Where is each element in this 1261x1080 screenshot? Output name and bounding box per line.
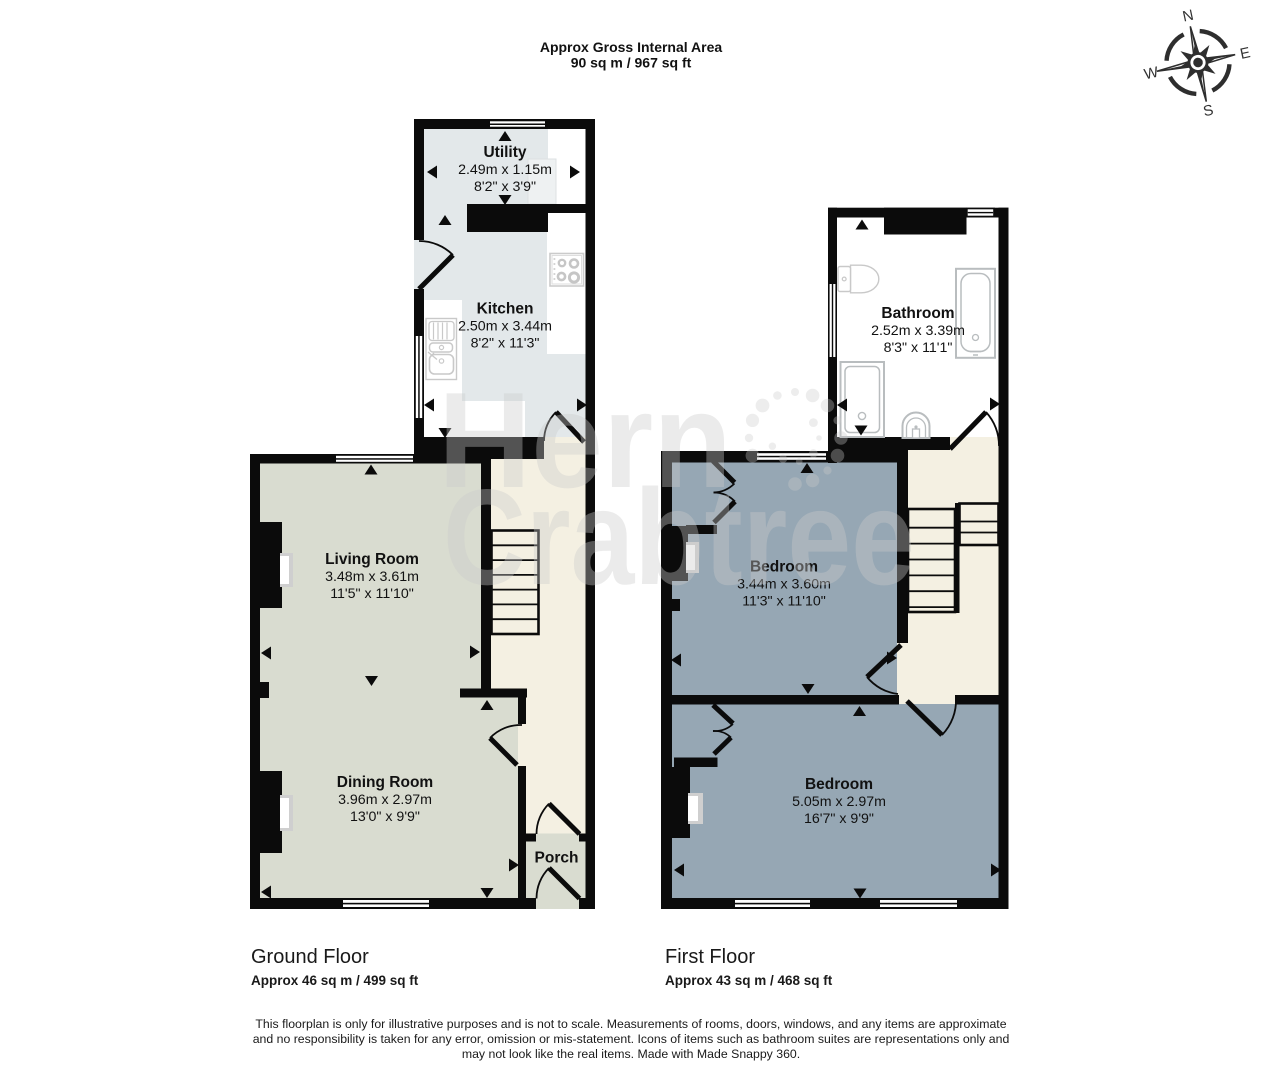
svg-text:8'3" x 11'1": 8'3" x 11'1" — [884, 340, 953, 356]
svg-text:Utility: Utility — [483, 144, 526, 161]
svg-text:13'0" x 9'9": 13'0" x 9'9" — [350, 809, 420, 825]
svg-text:3.48m x 3.61m: 3.48m x 3.61m — [325, 569, 419, 585]
svg-text:16'7" x 9'9": 16'7" x 9'9" — [804, 811, 874, 827]
svg-text:2.50m x 3.44m: 2.50m x 3.44m — [458, 319, 552, 335]
svg-text:Living Room: Living Room — [325, 551, 419, 568]
svg-text:Porch: Porch — [535, 850, 579, 867]
svg-text:W: W — [1143, 63, 1161, 83]
svg-text:8'2" x 3'9": 8'2" x 3'9" — [474, 179, 536, 195]
svg-text:Dining Room: Dining Room — [337, 774, 433, 791]
svg-text:Approx 46 sq m / 499 sq ft: Approx 46 sq m / 499 sq ft — [251, 973, 419, 988]
svg-text:3.96m x 2.97m: 3.96m x 2.97m — [338, 792, 432, 808]
svg-text:Approx 43 sq m / 468 sq ft: Approx 43 sq m / 468 sq ft — [665, 973, 833, 988]
svg-text:Bathroom: Bathroom — [881, 305, 954, 322]
svg-text:2.49m x 1.15m: 2.49m x 1.15m — [458, 162, 552, 178]
svg-text:5.05m x 2.97m: 5.05m x 2.97m — [792, 794, 886, 810]
svg-text:S: S — [1202, 102, 1215, 121]
svg-text:11'5" x 11'10": 11'5" x 11'10" — [330, 586, 414, 602]
svg-text:8'2" x 11'3": 8'2" x 11'3" — [471, 336, 540, 352]
svg-text:may not look like the real ite: may not look like the real items. Made w… — [462, 1047, 800, 1061]
svg-text:E: E — [1238, 44, 1251, 63]
svg-text:This floorplan is only for ill: This floorplan is only for illustrative … — [255, 1017, 1006, 1031]
svg-text:Crabtree: Crabtree — [443, 461, 915, 613]
svg-text:and no responsibility is taken: and no responsibility is taken for any e… — [253, 1032, 1010, 1046]
svg-text:N: N — [1181, 7, 1195, 26]
svg-text:First Floor: First Floor — [665, 946, 755, 968]
svg-text:90 sq m / 967 sq ft: 90 sq m / 967 sq ft — [571, 55, 692, 71]
svg-text:Bedroom: Bedroom — [805, 776, 873, 793]
svg-text:2.52m x 3.39m: 2.52m x 3.39m — [871, 323, 965, 339]
svg-text:Kitchen: Kitchen — [477, 301, 534, 318]
svg-text:Ground Floor: Ground Floor — [251, 946, 369, 968]
svg-text:Approx Gross Internal Area: Approx Gross Internal Area — [540, 39, 723, 55]
